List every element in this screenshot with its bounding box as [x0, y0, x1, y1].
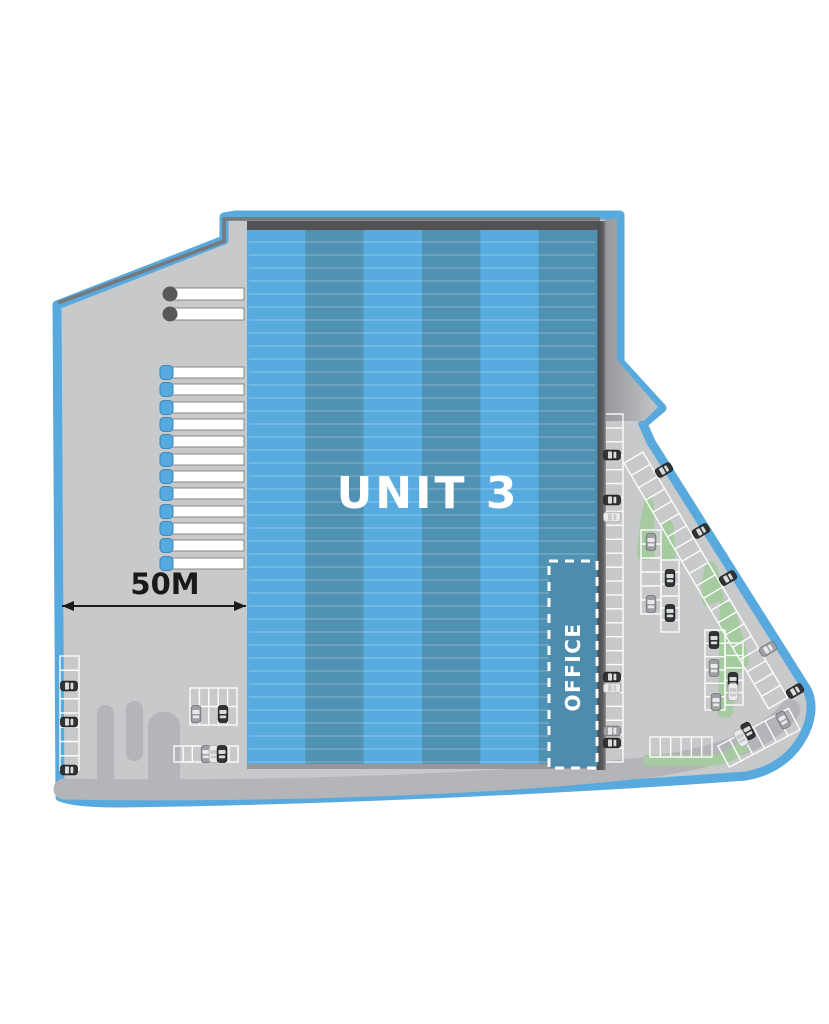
car	[61, 681, 78, 691]
loading-dock-blue	[160, 418, 244, 432]
car	[61, 765, 78, 775]
car	[61, 717, 78, 727]
loading-dock-gray	[163, 307, 245, 322]
loading-dock-blue	[160, 470, 244, 484]
car	[646, 596, 656, 613]
car	[604, 672, 621, 682]
car	[665, 605, 675, 622]
building-base-shadow	[247, 764, 597, 769]
loading-dock-blue	[160, 453, 244, 467]
car	[711, 694, 721, 711]
unit-label: UNIT 3	[337, 468, 520, 519]
roof-edge-top	[247, 221, 606, 230]
loading-dock-blue	[160, 401, 244, 415]
car	[709, 632, 719, 649]
car	[604, 495, 621, 505]
office-label: OFFICE	[561, 622, 585, 711]
car	[604, 512, 621, 522]
dimension-label: 50M	[130, 567, 199, 601]
site-plan-page: UNIT 3 OFFICE 50M	[0, 0, 829, 1024]
car	[728, 684, 738, 701]
loading-dock-blue	[160, 435, 244, 449]
site-plan: UNIT 3 OFFICE 50M	[0, 0, 829, 1024]
car	[604, 683, 621, 693]
car	[218, 706, 228, 723]
warehouse-building: UNIT 3 OFFICE	[247, 221, 606, 770]
car	[604, 726, 621, 736]
loading-dock-blue	[160, 522, 244, 536]
loading-dock-blue	[160, 487, 244, 501]
car	[191, 706, 201, 723]
car	[665, 570, 675, 587]
loading-dock-blue	[160, 505, 244, 519]
car	[604, 738, 621, 748]
roof-stripe	[247, 230, 306, 766]
loading-dock-blue	[160, 539, 244, 553]
car	[709, 660, 719, 677]
car	[604, 450, 621, 460]
loading-dock-blue	[160, 383, 244, 397]
car	[646, 534, 656, 551]
loading-dock-blue	[160, 366, 244, 380]
loading-dock-gray	[163, 287, 245, 302]
car	[217, 746, 227, 763]
